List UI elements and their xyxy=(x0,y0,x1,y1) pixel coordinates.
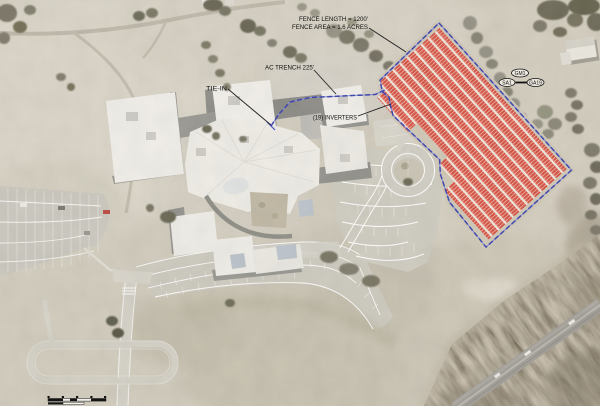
svg-text:FENCE AREA = 1.6 ACRES: FENCE AREA = 1.6 ACRES xyxy=(292,24,369,31)
svg-text:FENCE LENGTH = 1200': FENCE LENGTH = 1200' xyxy=(299,16,368,23)
svg-text:AC TRENCH 225': AC TRENCH 225' xyxy=(265,65,314,72)
svg-text:GM1: GM1 xyxy=(515,71,526,77)
svg-text:SA1: SA1 xyxy=(502,81,512,87)
svg-text:GA19: GA19 xyxy=(529,81,542,87)
svg-text:TIE-IN: TIE-IN xyxy=(206,86,227,93)
svg-text:(19) INVERTERS: (19) INVERTERS xyxy=(313,115,358,122)
